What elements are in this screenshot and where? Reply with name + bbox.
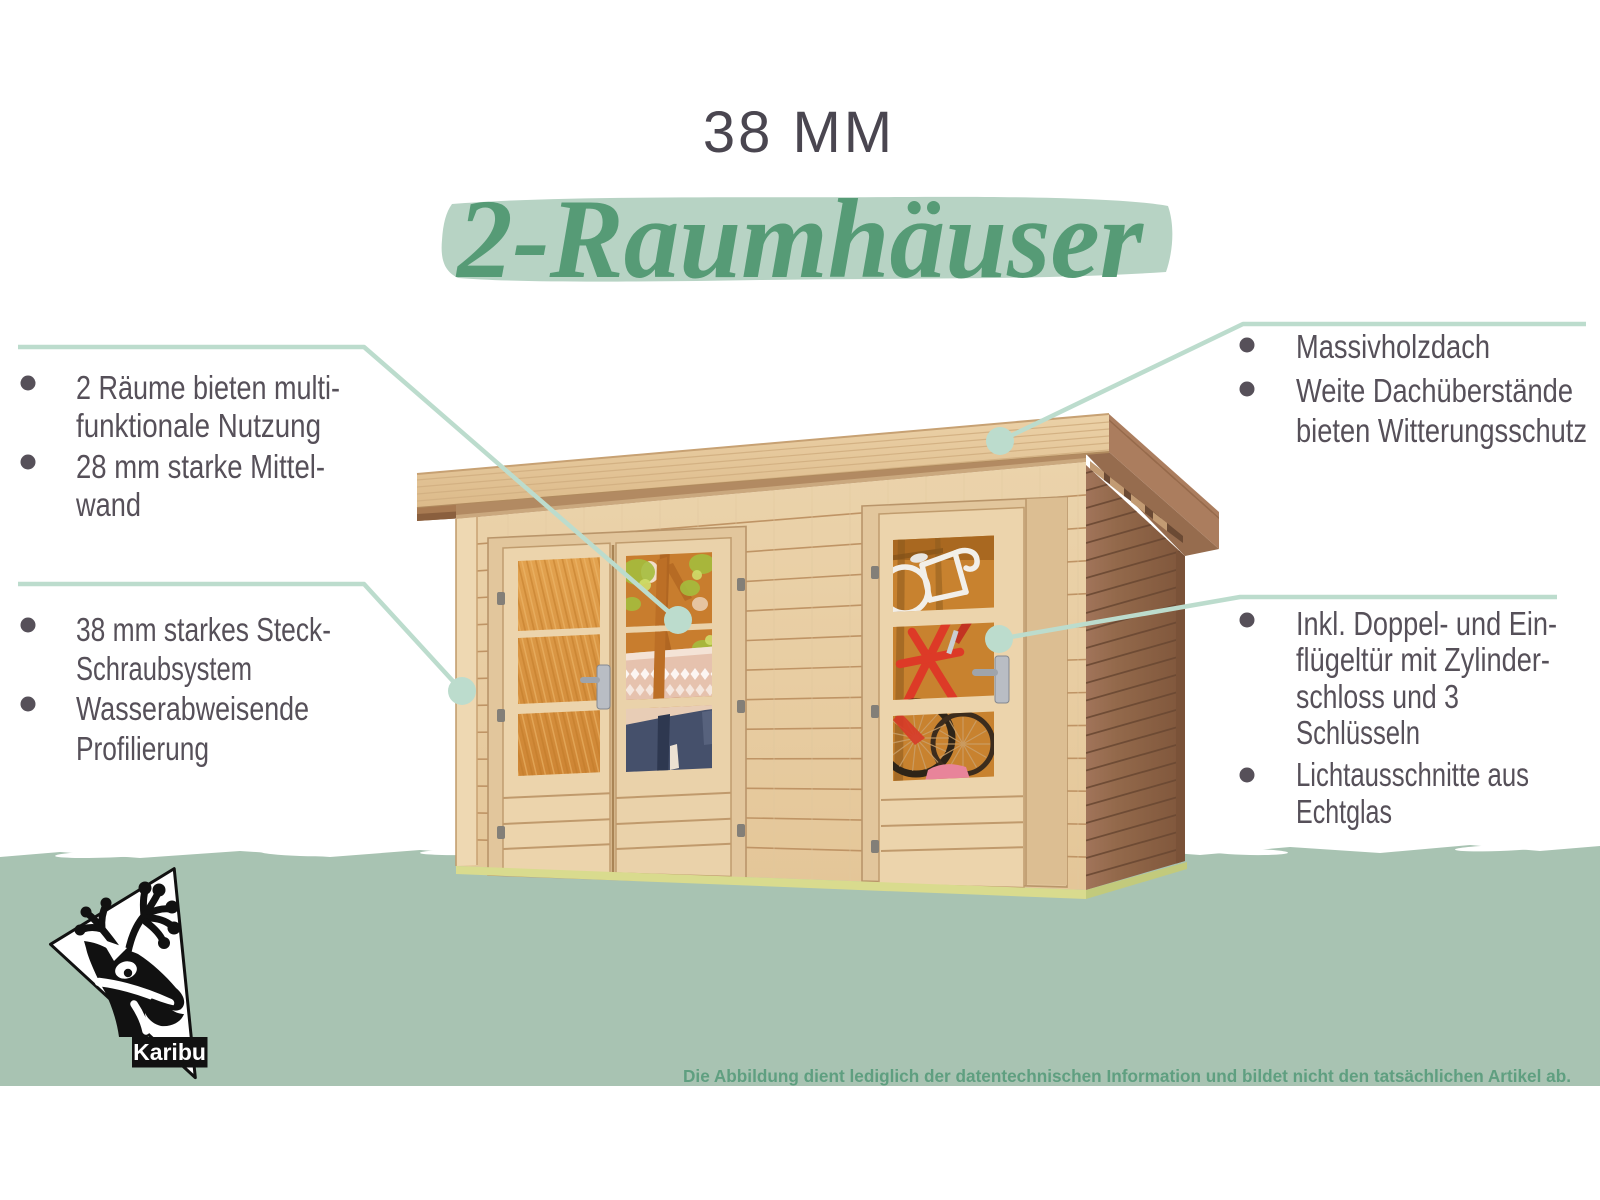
svg-text:Schlüsseln: Schlüsseln [1296, 714, 1420, 751]
svg-text:Karibu: Karibu [133, 1039, 206, 1065]
svg-text:28 mm starke Mittel-: 28 mm starke Mittel- [76, 448, 325, 485]
svg-text:Profilierung: Profilierung [76, 730, 209, 767]
svg-text:Massivholzdach: Massivholzdach [1296, 328, 1490, 365]
svg-text:38 mm starkes Steck-: 38 mm starkes Steck- [76, 611, 331, 648]
svg-text:Echtglas: Echtglas [1296, 793, 1392, 830]
svg-text:Schraubsystem: Schraubsystem [76, 650, 252, 687]
svg-text:funktionale Nutzung: funktionale Nutzung [76, 407, 321, 444]
svg-text:2-Raumhäuser: 2-Raumhäuser [455, 177, 1145, 302]
svg-text:38 MM: 38 MM [703, 100, 895, 165]
svg-text:Wasserabweisende: Wasserabweisende [76, 690, 309, 727]
svg-text:2 Räume bieten multi-: 2 Räume bieten multi- [76, 369, 340, 406]
svg-text:wand: wand [75, 486, 141, 523]
svg-text:schloss und 3: schloss und 3 [1296, 678, 1459, 715]
svg-text:Weite Dachüberstände: Weite Dachüberstände [1296, 372, 1573, 409]
svg-text:Die Abbildung dient lediglich: Die Abbildung dient lediglich der datent… [683, 1066, 1571, 1086]
svg-text:bieten Witterungsschutz: bieten Witterungsschutz [1296, 412, 1587, 449]
svg-text:flügeltür mit Zylinder-: flügeltür mit Zylinder- [1296, 641, 1550, 678]
svg-text:Inkl. Doppel- und Ein-: Inkl. Doppel- und Ein- [1296, 605, 1557, 642]
svg-text:Lichtausschnitte aus: Lichtausschnitte aus [1296, 756, 1529, 793]
